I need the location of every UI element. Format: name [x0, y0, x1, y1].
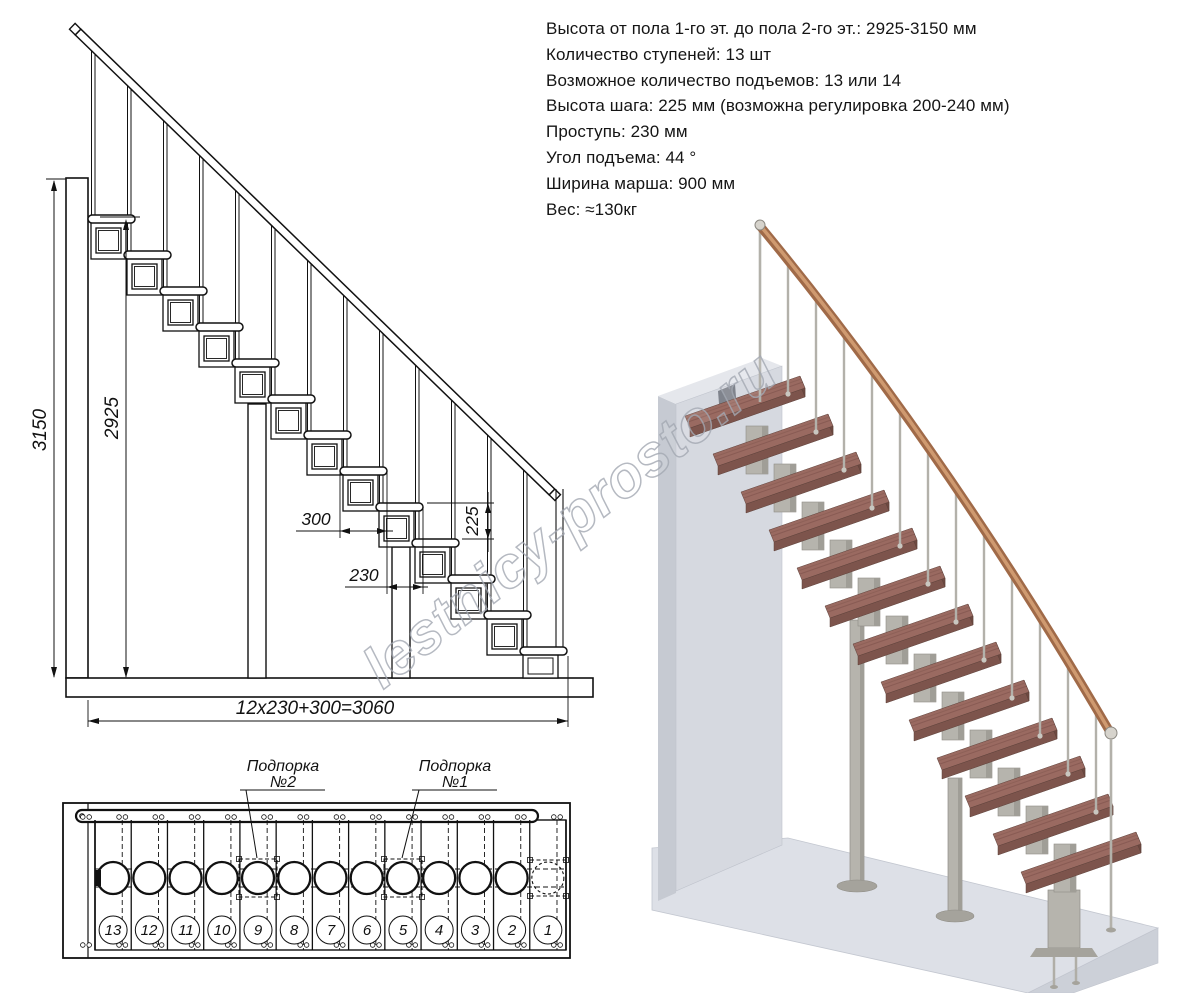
tread: [196, 323, 243, 331]
fitting: [196, 815, 201, 820]
step-number: 5: [399, 922, 408, 939]
fitting: [341, 943, 346, 948]
spec-line: Возможное количество подъемов: 13 или 14: [546, 68, 1188, 94]
step-number: 11: [178, 922, 194, 939]
baluster-3d-foot: [925, 581, 930, 586]
fitting: [449, 815, 454, 820]
baluster-3d-foot: [1009, 695, 1014, 700]
fitting: [558, 815, 563, 820]
step-number: 6: [363, 922, 372, 939]
side-view-balusters: [92, 47, 528, 647]
tread: [88, 215, 135, 223]
pole-mount: [278, 862, 310, 894]
fitting: [268, 943, 273, 948]
fitting: [407, 815, 412, 820]
fitting: [153, 815, 158, 820]
step-number: 13: [105, 922, 122, 939]
support1-label: Подпорка: [419, 758, 491, 775]
dim-run-label: 230: [348, 565, 378, 585]
staircase-3d-render: [652, 220, 1158, 993]
fitting: [81, 943, 86, 948]
fitting: [413, 943, 418, 948]
fitting: [298, 815, 303, 820]
fitting: [377, 943, 382, 948]
fitting: [304, 815, 309, 820]
dim-total-height: 3150: [30, 179, 66, 678]
fitting: [551, 815, 556, 820]
fitting: [123, 815, 128, 820]
fitting: [87, 943, 92, 948]
dim-rise-label: 225: [462, 506, 482, 536]
spec-line: Количество ступеней: 13 шт: [546, 42, 1188, 68]
baluster-3d-foot: [981, 657, 986, 662]
baluster-3d-foot: [1093, 809, 1098, 814]
fitting: [196, 943, 201, 948]
fitting: [479, 815, 484, 820]
tread: [160, 287, 207, 295]
dim-total-height-label: 3150: [30, 408, 51, 451]
fitting: [117, 815, 122, 820]
baluster-3d-foot: [1037, 733, 1042, 738]
step-number: 10: [214, 922, 231, 939]
support2-label-number: №2: [270, 774, 296, 791]
fitting: [522, 943, 527, 948]
fitting: [232, 943, 237, 948]
tread: [124, 251, 171, 259]
fitting: [377, 815, 382, 820]
baluster-3d-foot: [1065, 771, 1070, 776]
fitting: [81, 815, 86, 820]
tread: [268, 395, 315, 403]
staircase-spec-sheet: 3150 2925 300 230: [0, 0, 1191, 993]
spec-line: Проступь: 230 мм: [546, 119, 1188, 145]
step-number: 9: [254, 922, 263, 939]
dim-tread-depth-label: 300: [301, 509, 330, 529]
fitting: [87, 815, 92, 820]
pole-mount: [351, 862, 383, 894]
base-plate: [66, 678, 593, 697]
step-number: 4: [435, 922, 443, 939]
baluster-3d-foot: [869, 505, 874, 510]
specifications: Высота от пола 1-го эт. до пола 2-го эт.…: [546, 16, 1188, 222]
fitting: [341, 815, 346, 820]
tread: [340, 467, 387, 475]
pole-mount: [133, 862, 165, 894]
baluster-3d-foot: [953, 619, 958, 624]
fitting: [522, 815, 527, 820]
tread: [412, 539, 459, 547]
spec-line: Высота шага: 225 мм (возможна регулировк…: [546, 93, 1188, 119]
fitting: [485, 943, 490, 948]
fitting: [558, 943, 563, 948]
support2-label: Подпорка: [247, 758, 319, 775]
fitting: [225, 815, 230, 820]
plan-view-drawing: 13 12 11 10 9 8 7 6 5 4 3 2 1 Подпорка №…: [63, 758, 570, 958]
pole-mount: [170, 862, 202, 894]
pole-mount: [242, 862, 274, 894]
fitting: [334, 815, 339, 820]
fitting: [443, 815, 448, 820]
step-number: 8: [290, 922, 299, 939]
step-number: 3: [471, 922, 480, 939]
fitting: [370, 815, 375, 820]
support-column-2: [248, 404, 266, 678]
spec-line: Высота от пола 1-го эт. до пола 2-го эт.…: [546, 16, 1188, 42]
fitting: [413, 815, 418, 820]
baluster-3d-foot: [785, 391, 790, 396]
pole-mount: [314, 862, 346, 894]
pole-mount: [206, 862, 238, 894]
fitting: [485, 815, 490, 820]
upper-floor-wall: [66, 178, 88, 678]
tread: [376, 503, 423, 511]
dim-floor-height-label: 2925: [102, 396, 123, 440]
step-number: 7: [327, 922, 336, 939]
dim-total-length-label: 12x230+300=3060: [236, 698, 395, 719]
pole-mount: [97, 862, 129, 894]
fitting: [123, 943, 128, 948]
tread: [520, 647, 567, 655]
pole-mount: [496, 862, 528, 894]
pole-mount: [387, 862, 419, 894]
fitting: [189, 815, 194, 820]
step-number: 12: [141, 922, 158, 939]
pole-mount: [423, 862, 455, 894]
spec-line: Угол подъема: 44 °: [546, 145, 1188, 171]
spec-line: Вес: ≈130кг: [546, 197, 1188, 223]
wall-attach-bar: [95, 870, 101, 886]
tread: [304, 431, 351, 439]
fitting: [304, 943, 309, 948]
handrail-end-ferrule: [1105, 727, 1117, 739]
step-number: 1: [544, 922, 552, 939]
end-rod-foot: [1106, 928, 1116, 933]
side-view-drawing: 3150 2925 300 230: [30, 23, 593, 727]
fitting: [232, 815, 237, 820]
tread: [232, 359, 279, 367]
fitting: [449, 943, 454, 948]
baluster-3d-foot: [897, 543, 902, 548]
baluster-3d-foot: [841, 467, 846, 472]
step-number: 2: [507, 922, 517, 939]
fitting: [159, 815, 164, 820]
pole-mount: [459, 862, 491, 894]
spec-line: Ширина марша: 900 мм: [546, 171, 1188, 197]
support1-label-number: №1: [442, 774, 468, 791]
baluster-3d-foot: [813, 429, 818, 434]
fitting: [515, 815, 520, 820]
fitting: [159, 943, 164, 948]
fitting: [268, 815, 273, 820]
fitting: [262, 815, 267, 820]
